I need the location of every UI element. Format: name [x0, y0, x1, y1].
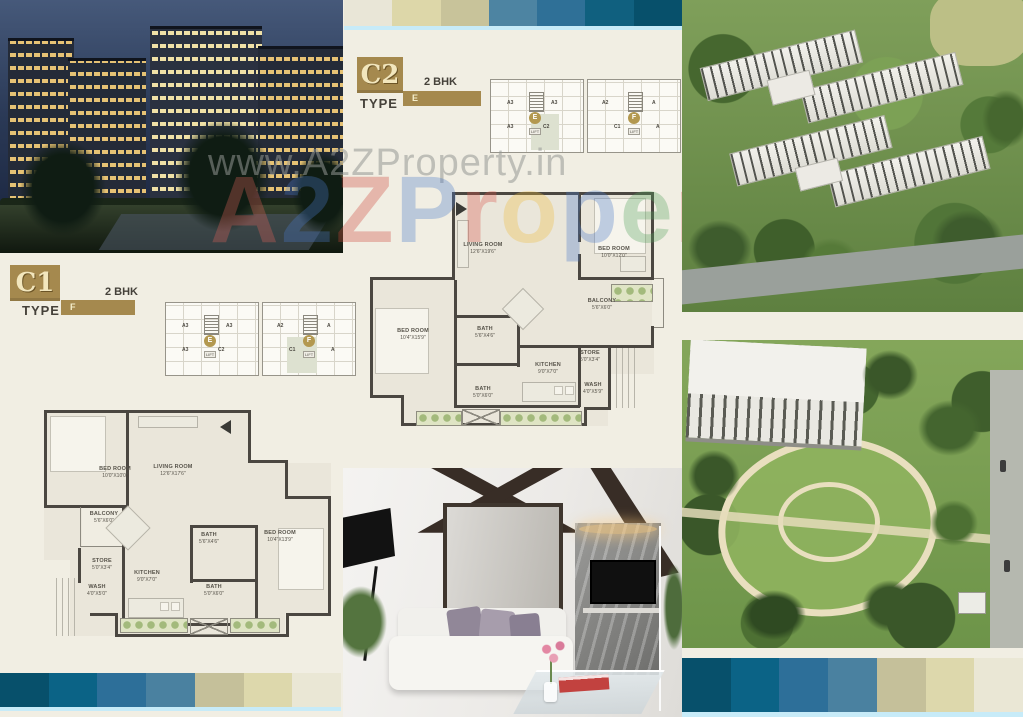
key-plan-wing: A2 A C1 A F LIFT [262, 302, 356, 376]
room-label: BATH 5'0"X6'0" [192, 584, 236, 597]
wall-segment [370, 277, 373, 398]
strip-segment [292, 673, 341, 707]
hanging-lamp-cord [659, 526, 661, 711]
unit-label: A3 [182, 323, 188, 329]
wall-segment [286, 613, 289, 637]
room-name: BATH [460, 326, 510, 333]
room-name: BALCONY [80, 511, 128, 518]
planter [416, 411, 462, 426]
palette-strip-bottom-left [0, 673, 341, 707]
strip-segment [441, 0, 489, 26]
wall-segment [401, 395, 404, 426]
unit-label: A3 [507, 124, 513, 130]
room-dims: 10'4"X15'9" [380, 335, 446, 341]
type-label: TYPE [22, 303, 60, 318]
room-dims: 9'0"X7'0" [122, 577, 172, 583]
wall-segment [78, 548, 81, 583]
room-dims: 4'0"X5'0" [76, 591, 118, 597]
strip-segment [585, 0, 633, 26]
room-dims: 9'0"X7'0" [520, 369, 576, 375]
bed [375, 308, 429, 374]
room-dims: 5'6"X6'0" [574, 305, 630, 311]
sink [554, 386, 563, 395]
strip-segment [392, 0, 440, 26]
strip-segment [779, 658, 828, 712]
staircase [190, 618, 228, 635]
strip-segment [146, 673, 195, 707]
step-line [616, 348, 617, 408]
type-letter: E [412, 93, 418, 103]
room-name: STORE [570, 350, 610, 357]
aerial-render-photo [682, 0, 1023, 312]
type-letter: F [70, 302, 76, 312]
strip-underline-bottom-right [682, 712, 1023, 717]
strip-segment [49, 673, 98, 707]
room-dims: 4'0"X5'9" [573, 389, 613, 395]
unit-code: C1 [16, 268, 55, 298]
wall-segment [578, 277, 654, 280]
brochure-page: C2 2 BHK E TYPE A3 A3 A3 C2 E LIFT A2 A … [0, 0, 1023, 717]
stairs [303, 315, 318, 335]
garden-aerial-photo [682, 340, 1023, 648]
room-label: BATH 5'6"X4'6" [460, 326, 510, 339]
wall-segment [190, 579, 258, 582]
planter [500, 411, 582, 426]
room-dims: 5'6"X4'6" [187, 539, 231, 545]
room-name: BATH [187, 532, 231, 539]
stove [171, 602, 180, 611]
room-label: BATH 5'0"X6'0" [460, 386, 506, 399]
room-label: STORE 5'0"X3'4" [570, 350, 610, 363]
type-circle: F [628, 112, 640, 124]
unit-label: A3 [226, 323, 232, 329]
tv [590, 560, 656, 604]
bed [50, 416, 106, 472]
strip-segment [828, 658, 877, 712]
room-dims: 5'6"X6'0" [80, 518, 128, 524]
room-name: BED ROOM [380, 328, 446, 335]
key-plan-wing: A3 A3 A3 C2 E LIFT [490, 79, 584, 153]
strip-segment [731, 658, 780, 712]
wall-segment [452, 192, 455, 280]
lift-label: LIFT [529, 128, 541, 135]
wall-segment [452, 192, 654, 195]
unit-label: A [327, 323, 331, 329]
plant [343, 586, 387, 658]
room-dims: 5'0"X3'4" [82, 565, 122, 571]
tree [742, 590, 806, 640]
unit-label: A3 [182, 347, 188, 353]
room-name: KITCHEN [520, 362, 576, 369]
wall-segment [285, 460, 288, 498]
type-circle: E [529, 112, 541, 124]
step-line [628, 348, 629, 408]
key-plan-c2: A3 A3 A3 C2 E LIFT A2 A C1 A F LIFT [490, 77, 680, 153]
wall-segment [286, 613, 331, 616]
room-label: BED ROOM 10'4"X13'9" [250, 530, 310, 543]
plant [663, 564, 682, 650]
step-line [62, 578, 63, 636]
tree [918, 400, 982, 456]
key-plan-c1: A3 A3 A3 C2 E LIFT A2 A C1 A F LIFT [165, 300, 355, 376]
watermark-letter: r [675, 157, 682, 263]
railing [663, 278, 664, 328]
car [1000, 460, 1006, 472]
room-dims: 10'0"X10'0" [86, 473, 144, 479]
interior-living-room-photo [343, 468, 682, 717]
stairs [628, 92, 643, 112]
car [1004, 560, 1010, 572]
room-label: BALCONY 5'6"X6'0" [574, 298, 630, 311]
unit-label: A2 [602, 100, 608, 106]
unit-label: C1 [289, 347, 295, 353]
room-label: BATH 5'6"X4'6" [187, 532, 231, 545]
unit-label: A [331, 347, 335, 353]
wall-segment [44, 410, 250, 413]
floor-plan-c2: LIVING ROOM 12'6"X19'6" BED ROOM 10'0"X1… [368, 190, 665, 432]
wall-segment [651, 192, 654, 280]
vase [544, 682, 557, 702]
railing [80, 546, 128, 547]
strip-segment [489, 0, 537, 26]
wall-segment [248, 460, 288, 463]
palette-strip-bottom-right [682, 658, 1023, 712]
unit-label: C2 [218, 347, 224, 353]
entrance-arrow-icon [220, 420, 231, 434]
room-dims: 10'0"X12'0" [582, 253, 646, 259]
room-dims: 5'0"X3'4" [570, 357, 610, 363]
unit-label: C1 [614, 124, 620, 130]
room-dims: 5'6"X4'6" [460, 333, 510, 339]
strip-segment [244, 673, 293, 707]
room-label: LIVING ROOM 12'6"X19'6" [448, 242, 518, 255]
wall-segment [370, 277, 454, 280]
room-name: BED ROOM [86, 466, 144, 473]
wardrobe [138, 416, 198, 428]
tree [292, 150, 343, 234]
type-letter-bar: E [403, 91, 481, 106]
floor-plan-c1: BED ROOM 10'0"X10'0" LIVING ROOM 12'6"X1… [42, 408, 335, 662]
step-line [68, 578, 69, 636]
bhk-label: 2 BHK [105, 286, 138, 298]
room-dims: 5'0"X6'0" [460, 393, 506, 399]
palette-strip-top [344, 0, 682, 26]
wall-segment [126, 410, 129, 508]
room-name: WASH [76, 584, 118, 591]
lift-label: LIFT [628, 128, 640, 135]
tree [862, 350, 918, 400]
stairs [204, 315, 219, 335]
key-plan-wing: A3 A3 A3 C2 E LIFT [165, 302, 259, 376]
room-name: BED ROOM [250, 530, 310, 537]
room-dims: 12'6"X17'6" [142, 471, 204, 477]
unit-code-badge: C1 [10, 265, 60, 301]
cove-light [579, 524, 657, 534]
tv-shelf [583, 608, 659, 613]
wall-segment [454, 280, 457, 408]
strip-segment [97, 673, 146, 707]
gazebo [958, 592, 986, 614]
room-label: BALCONY 5'6"X6'0" [80, 511, 128, 524]
flowers [537, 638, 569, 666]
unit-label: A [656, 124, 660, 130]
planter [230, 618, 280, 633]
unit-label: A3 [551, 100, 557, 106]
sink [160, 602, 169, 611]
room-name: BATH [192, 584, 236, 591]
type-circle: E [204, 335, 216, 347]
strip-segment [926, 658, 975, 712]
wall-segment [248, 410, 251, 462]
strip-segment [0, 673, 49, 707]
strip-segment [537, 0, 585, 26]
room-name: LIVING ROOM [448, 242, 518, 249]
strip-segment [634, 0, 682, 26]
tree [930, 500, 978, 546]
room-name: BATH [460, 386, 506, 393]
room-label: WASH 4'0"X5'9" [573, 382, 613, 395]
wall-segment [90, 613, 117, 616]
room-dims: 5'0"X6'0" [192, 591, 236, 597]
unit-label: A2 [277, 323, 283, 329]
tree [688, 450, 740, 502]
planter [120, 618, 188, 633]
wall-segment [44, 505, 128, 508]
road [990, 370, 1023, 648]
step-line [56, 578, 57, 636]
unit-label: C2 [543, 124, 549, 130]
room-name: BALCONY [574, 298, 630, 305]
lift-label: LIFT [204, 351, 216, 358]
room-name: BED ROOM [582, 246, 646, 253]
room-label: BED ROOM 10'0"X10'0" [86, 466, 144, 479]
room-label: LIVING ROOM 12'6"X17'6" [142, 464, 204, 477]
unit-label: A [652, 100, 656, 106]
strip-underline-top [344, 26, 682, 30]
wall-segment [578, 192, 581, 242]
entrance-arrow-icon [456, 202, 467, 216]
wall-segment [44, 410, 47, 508]
building-block [685, 340, 866, 451]
room-label: KITCHEN 9'0"X7'0" [122, 570, 172, 583]
lift-label: LIFT [303, 351, 315, 358]
room-dims: 10'4"X13'9" [250, 537, 310, 543]
strip-segment [195, 673, 244, 707]
strip-underline-bottom-left [0, 707, 341, 711]
wall-segment [190, 525, 258, 528]
room-label: WASH 4'0"X5'0" [76, 584, 118, 597]
room-name: KITCHEN [122, 570, 172, 577]
tree [862, 580, 918, 632]
wall-segment [454, 405, 580, 408]
wall-segment [584, 407, 611, 410]
staircase [462, 409, 500, 426]
strip-segment [682, 658, 731, 712]
bhk-label: 2 BHK [424, 76, 457, 88]
unit-label: A3 [507, 100, 513, 106]
tree [175, 120, 271, 232]
unit-code: C2 [361, 60, 400, 90]
tree [982, 90, 1023, 148]
stairs [529, 92, 544, 112]
room-name: STORE [82, 558, 122, 565]
tree [20, 140, 106, 236]
step-line [74, 578, 75, 636]
wall-segment [370, 395, 403, 398]
wall-segment [285, 496, 331, 499]
unit-code-badge: C2 [357, 57, 403, 93]
step-line [634, 348, 635, 408]
key-plan-wing: A2 A C1 A F LIFT [587, 79, 681, 153]
room-name: WASH [573, 382, 613, 389]
room-dims: 12'6"X19'6" [448, 249, 518, 255]
exterior-night-photo [0, 0, 343, 253]
step-line [622, 348, 623, 408]
type-label: TYPE [360, 96, 398, 111]
room-label: STORE 5'0"X3'4" [82, 558, 122, 571]
room-label: KITCHEN 9'0"X7'0" [520, 362, 576, 375]
floor-lamp-shade [343, 508, 395, 568]
wall-segment [454, 363, 520, 366]
type-letter-bar: F [61, 300, 135, 315]
wall-segment [328, 496, 331, 616]
strip-segment [974, 658, 1023, 712]
room-label: BED ROOM 10'0"X12'0" [582, 246, 646, 259]
room-name: LIVING ROOM [142, 464, 204, 471]
strip-segment [344, 0, 392, 26]
strip-segment [877, 658, 926, 712]
room-label: BED ROOM 10'4"X15'9" [380, 328, 446, 341]
type-circle: F [303, 335, 315, 347]
